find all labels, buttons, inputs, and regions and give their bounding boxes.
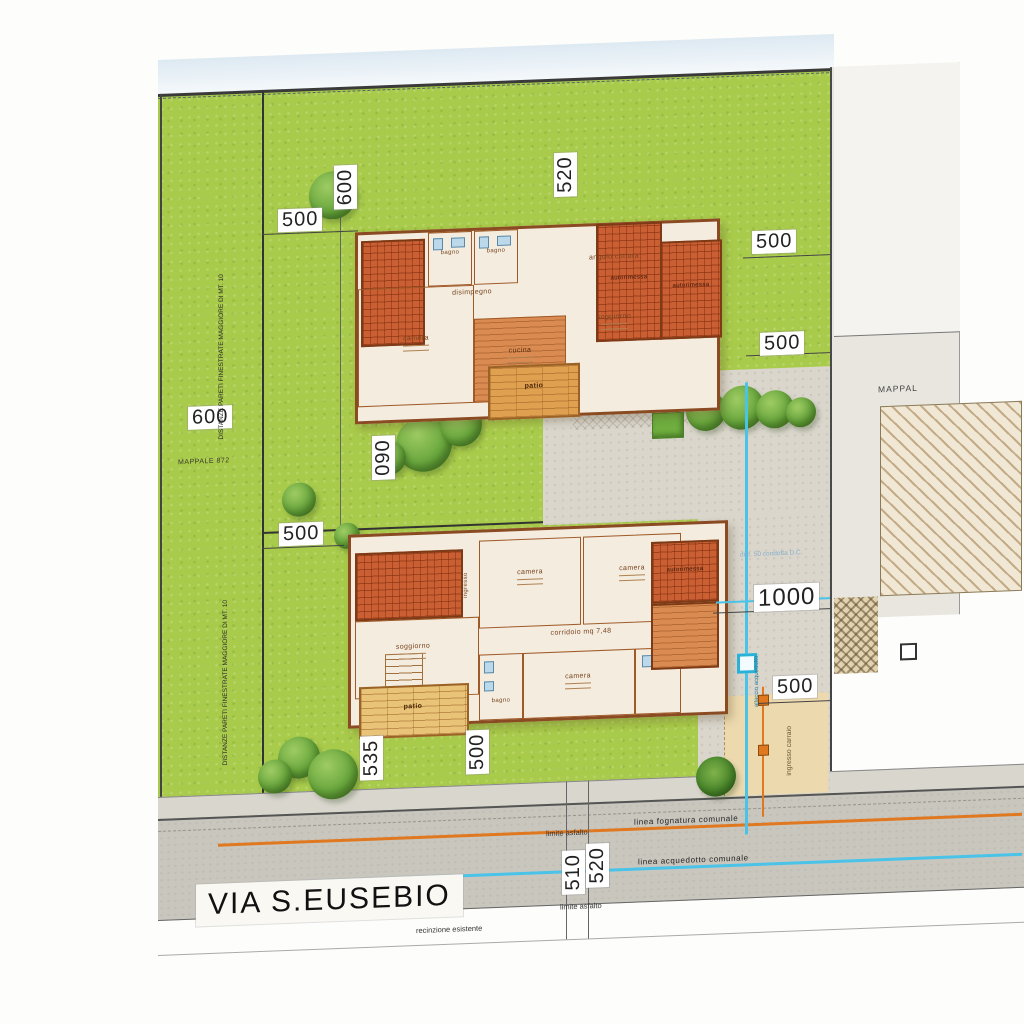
dim-500-right-a: 500: [752, 229, 796, 254]
room-text: cucina: [509, 347, 532, 355]
room-text: bagno: [487, 248, 506, 255]
room-text: patio: [525, 382, 544, 390]
dim-090: 090: [372, 435, 395, 480]
dim-500-drive: 500: [773, 675, 817, 700]
patio-deck-upper: [488, 363, 580, 421]
room-label-ingresso: ingresso: [463, 557, 471, 613]
room-text: autorimessa: [666, 566, 703, 573]
room-text: patio: [404, 703, 423, 711]
room-label-camera: camera: [378, 334, 454, 353]
driveway-entrance: [724, 692, 828, 796]
neighbor-building: [834, 62, 960, 337]
recinzione-label: recinzione esistente: [416, 924, 482, 936]
left-parcel-divider: [262, 92, 264, 840]
room-text: camera: [619, 564, 645, 572]
dim-520-road: 520: [586, 843, 609, 888]
room-text: bagno: [441, 249, 460, 256]
garage-floor: [651, 601, 719, 670]
room-text: autorimessa: [610, 274, 647, 281]
room-text: camera: [403, 335, 429, 343]
dim-1000-drive: 1000: [754, 583, 819, 613]
neighbor-hatch-area: [880, 401, 1022, 596]
room-text: soggiorno: [597, 313, 631, 321]
bathroom-lower-1: [479, 653, 523, 721]
dim-510-road: 510: [562, 850, 585, 895]
room-text: camera: [517, 568, 543, 576]
dim-535-garden: 535: [360, 735, 383, 780]
room-label-corridoio: corridoio mq 7,48: [501, 626, 661, 641]
limite-asfalto-upper: limite asfalto: [546, 827, 588, 838]
road-lower-line: [158, 922, 1024, 956]
dim-600-left: 600: [188, 405, 232, 430]
limite-asfalto-lower: limite asfalto: [560, 901, 602, 912]
dim-500-right-b: 500: [760, 331, 804, 356]
room-label-cucina: cucina: [488, 346, 552, 364]
room-text: soggiorno: [396, 643, 430, 651]
dim-500-lot2: 500: [279, 522, 323, 547]
roof-lower-left: [355, 549, 463, 621]
bathroom-2: [474, 229, 518, 285]
square-hedge: [652, 412, 684, 439]
room-label-bagno-1: bagno: [430, 249, 470, 258]
dim-500-lot1: 500: [278, 208, 322, 233]
room-text: corridoio mq 7,48: [551, 628, 612, 637]
room-label-soggiorno-lower: soggiorno: [373, 642, 453, 661]
room-text: autorimessa: [672, 282, 709, 289]
ingresso-carraio-label: ingresso carraio: [786, 702, 793, 776]
dim-600-lot1: 600: [334, 164, 357, 209]
distanze-note-lower: DISTANZE PARETI FINESTRATE MAGGIORE DI M…: [222, 555, 229, 765]
room-label-camera-3: camera: [543, 672, 613, 690]
utility-box-symbol: [900, 643, 917, 661]
room-text: ingresso: [463, 572, 469, 598]
room-text: disimpegno: [452, 288, 492, 297]
dim-500-garden: 500: [466, 729, 489, 774]
distanze-note-upper: DISTANZE PARETI FINESTRATE MAGGIORE DI M…: [218, 229, 225, 439]
bathroom-1: [428, 231, 472, 287]
site-plan: disimpegno camera cucina angolo cottura …: [158, 27, 1024, 1020]
street-name: VIA S.EUSEBIO: [196, 874, 463, 926]
aqueduct-branch-line: [745, 382, 748, 834]
room-text: bagno: [492, 697, 511, 704]
room-label-bagno-2: bagno: [476, 247, 516, 256]
inner-divider: [340, 173, 341, 529]
house-upper: disimpegno camera cucina angolo cottura …: [355, 218, 720, 424]
sewer-manhole: [758, 745, 769, 756]
mappale-right-label: MAPPAL: [878, 383, 918, 395]
allaccio-label: allaccio acquedotto: [754, 643, 760, 707]
neighbor-hatch-area-2: [834, 596, 878, 674]
room-label-camera-1: camera: [497, 567, 563, 585]
house-lower: ingresso camera camera corridoio mq 7,48…: [348, 520, 728, 729]
room-label-soggiorno: soggiorno: [572, 312, 656, 331]
dim-520-lot1: 520: [554, 152, 577, 197]
west-boundary: [160, 94, 162, 844]
screenshot-root: { "plan": { "street_label": "VIA S.EUSEB…: [0, 0, 1024, 1024]
room-text: angolo cottura: [589, 253, 639, 262]
room-text: camera: [565, 672, 591, 680]
